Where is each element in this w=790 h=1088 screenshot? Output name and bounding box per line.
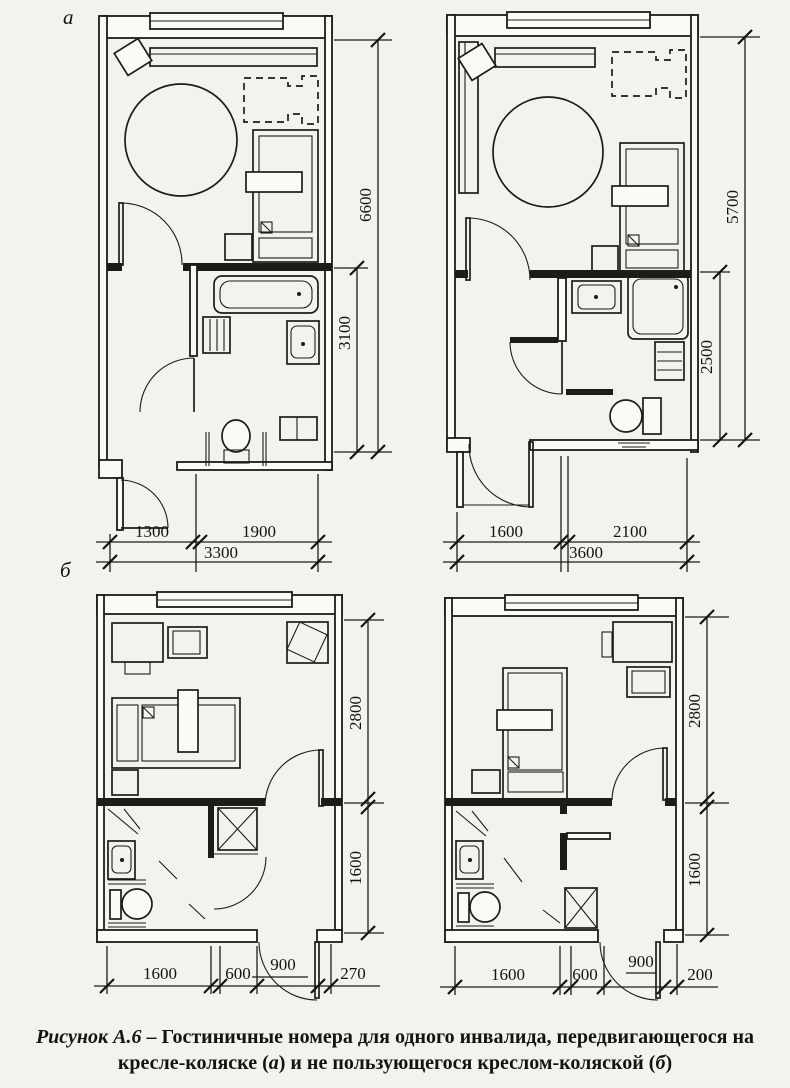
room-door-leaf: [319, 750, 323, 806]
bed: [503, 668, 567, 800]
bed: [620, 143, 684, 272]
overbed-table: [497, 710, 552, 730]
bedside-table: [225, 234, 252, 260]
dim-b-left-h-upper: 2800: [346, 696, 365, 730]
dim-a-right-w2: 2100: [613, 522, 647, 541]
bath-door-arc: [214, 857, 266, 909]
plan-b-right-furniture: [472, 622, 672, 928]
entrance-door-arc: [469, 444, 531, 507]
room-door-leaf: [119, 203, 123, 265]
shelf: [150, 48, 317, 66]
dim-b-right-w4: 200: [687, 965, 713, 984]
caption-letter-a: а: [269, 1052, 279, 1074]
bed: [112, 698, 240, 768]
toilet-bowl: [222, 420, 250, 452]
plan-a-right-furniture: [458, 42, 686, 272]
shower-marks: [456, 811, 488, 836]
desk: [613, 622, 672, 662]
armchair: [612, 50, 686, 98]
table: [495, 48, 595, 67]
dim-b-left-w1: 1600: [143, 964, 177, 983]
overbed-table: [178, 690, 198, 752]
dim-a-left-height-total: 6600: [356, 188, 375, 222]
plan-a-right-dimensions: 5700 2500 1600 2100 3600: [443, 30, 760, 572]
entrance-door-leaf: [529, 442, 533, 507]
plan-b-label: б: [60, 558, 72, 582]
plan-b-right-walls: [445, 595, 683, 942]
plan-a-right-bathroom: [572, 274, 688, 447]
plan-b-left-doors: [214, 750, 323, 1000]
dim-a-right-w-total: 3600: [569, 543, 603, 562]
turning-circle: [493, 97, 603, 207]
plan-a-label: а: [63, 5, 74, 29]
shower-tray: [628, 274, 688, 339]
toilet-bowl: [122, 889, 152, 919]
step: [280, 417, 317, 440]
dim-b-left-w3: 900: [270, 955, 296, 974]
dim-b-left-h-lower: 1600: [346, 851, 365, 885]
room-door-arc: [121, 203, 182, 265]
dim-a-right-height-total: 5700: [723, 190, 742, 224]
desk: [112, 623, 163, 662]
bedside-table: [112, 770, 138, 795]
overbed-table: [612, 186, 668, 206]
bedside-table: [472, 770, 500, 793]
plan-a-right-doors: [466, 218, 562, 507]
dim-b-left-w4: 270: [340, 964, 366, 983]
toilet-tank: [458, 893, 469, 922]
dim-b-right-h-upper: 2800: [685, 694, 704, 728]
turning-circle: [125, 84, 237, 196]
caption-letter-b: б: [655, 1052, 665, 1074]
room-door-arc: [612, 748, 665, 800]
room-door-arc: [468, 218, 530, 280]
dim-a-left-w1: 1300: [135, 522, 169, 541]
bedside-table: [592, 246, 618, 271]
dim-a-right-height-lower: 2500: [697, 340, 716, 374]
toilet-bowl: [610, 400, 642, 432]
entrance-door-arc: [121, 480, 168, 528]
shower-marks: [108, 809, 140, 834]
glass-marks: [504, 858, 560, 923]
entrance-door-arc: [600, 942, 658, 1000]
plan-b-left-bathroom: [108, 809, 205, 927]
entrance-door-leaf: [656, 942, 660, 998]
chair: [114, 39, 152, 76]
floor-plan-figure: а: [0, 0, 790, 1012]
dim-b-right-w1: 1600: [491, 965, 525, 984]
toilet-tank: [643, 398, 661, 434]
caption-separator: –: [142, 1026, 162, 1048]
bath-door-arc: [140, 358, 194, 412]
plan-a-left-bathroom: [203, 276, 319, 466]
dim-a-left-height-lower: 3100: [335, 316, 354, 350]
chair: [458, 44, 496, 81]
toilet-tank: [110, 890, 121, 919]
figure-caption: Рисунок А.6 – Гостиничные номера для одн…: [0, 1024, 790, 1076]
dim-b-right-w3: 900: [628, 952, 654, 971]
dim-a-left-w-total: 3300: [204, 543, 238, 562]
dim-a-right-w1: 1600: [489, 522, 523, 541]
toilet-bowl: [470, 892, 500, 922]
room-door-arc: [265, 750, 321, 806]
wardrobe: [287, 622, 328, 663]
bath-door-arc: [510, 342, 562, 394]
plan-b-left-furniture: [112, 622, 328, 850]
plan-a-left-furniture: [114, 39, 318, 262]
bed: [253, 130, 318, 262]
glass-marks: [159, 861, 205, 919]
overbed-table: [246, 172, 302, 192]
plan-a-left-doors: [119, 203, 194, 528]
room-door-leaf: [663, 748, 667, 800]
plan-b-right-bathroom: [456, 811, 560, 930]
dim-b-right-w2: 600: [572, 965, 598, 984]
dim-a-left-w2: 1900: [242, 522, 276, 541]
caption-text-mid: ) и не пользующегося креслом-коляской (: [279, 1052, 656, 1074]
caption-text-end: ): [665, 1052, 672, 1074]
dim-b-right-h-lower: 1600: [685, 853, 704, 887]
caption-figure-label: Рисунок А.6: [36, 1026, 142, 1048]
chair: [168, 627, 207, 658]
plan-a-left-walls: [99, 13, 332, 530]
dim-b-left-w2: 600: [225, 964, 251, 983]
armchair: [244, 76, 318, 124]
